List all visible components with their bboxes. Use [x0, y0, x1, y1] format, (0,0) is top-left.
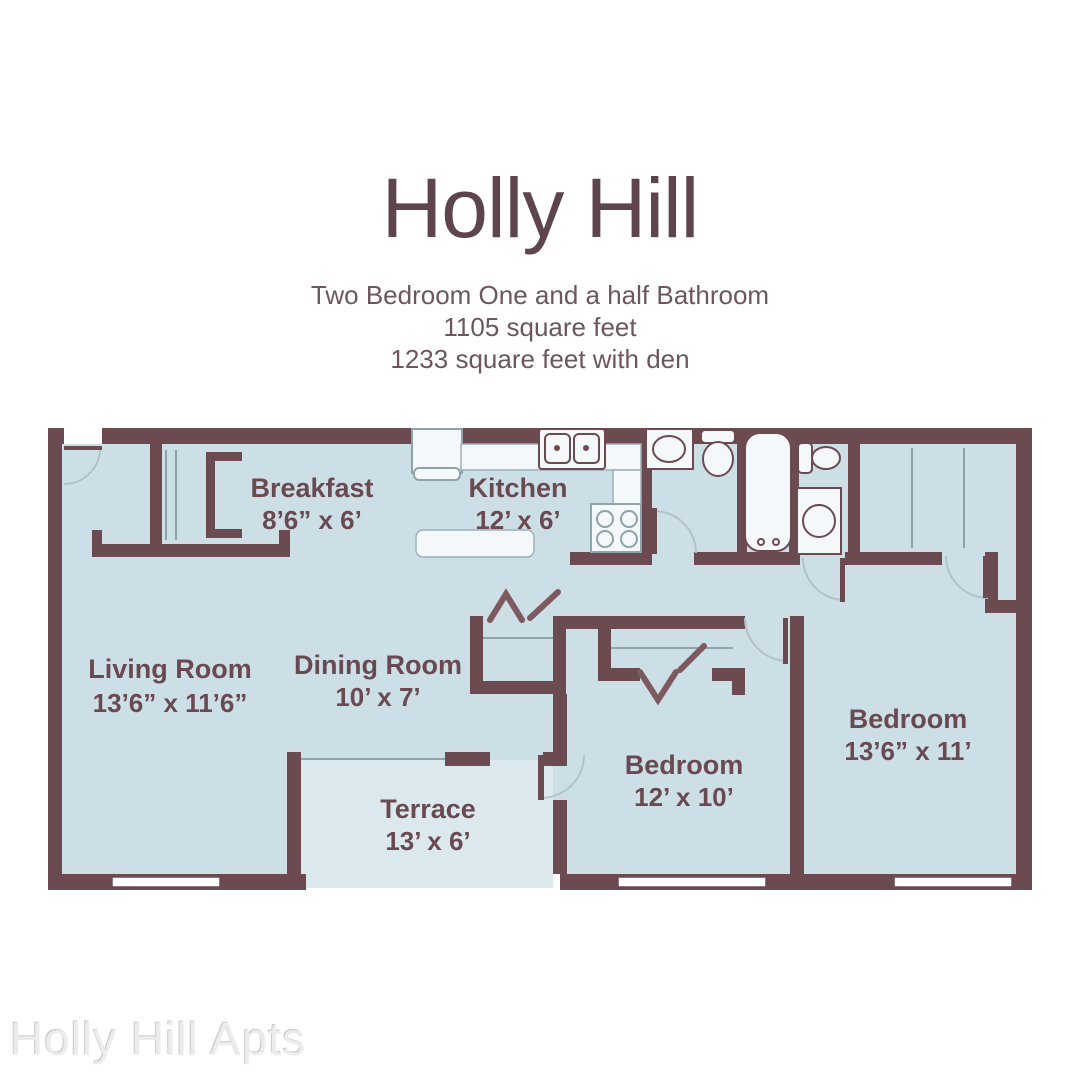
floorplan-page: Holly Hill Two Bedroom One and a half Ba… [0, 0, 1080, 1080]
washer-icon [797, 488, 841, 554]
living-room-dims: 13’6” x 11’6” [93, 688, 248, 718]
bathtub-icon [745, 433, 791, 551]
dining-room-label: Dining Room [294, 650, 462, 680]
stove-icon [591, 504, 641, 552]
terrace-door-leaf [538, 755, 544, 800]
breakfast-dims: 8’6” x 6’ [262, 505, 362, 535]
kitchen-dims: 12’ x 6’ [475, 505, 560, 535]
toilet-icon [701, 430, 735, 476]
watermark: Holly Hill Apts [10, 1012, 306, 1066]
page-title: Holly Hill [0, 160, 1080, 257]
header: Holly Hill Two Bedroom One and a half Ba… [0, 0, 1080, 375]
bedroom2-label: Bedroom [849, 704, 968, 734]
bedroom1-dims: 12’ x 10’ [634, 782, 734, 812]
bedroom2-window [894, 877, 1012, 887]
subtitle-line-2: 1105 square feet [0, 311, 1080, 343]
terrace-label: Terrace [380, 794, 476, 824]
terrace-dims: 13’ x 6’ [385, 826, 470, 856]
dining-room-dims: 10’ x 7’ [335, 682, 420, 712]
living-room-window [112, 877, 220, 887]
kitchen-label: Kitchen [468, 473, 567, 503]
bedroom2-dims: 13’6” x 11’ [844, 736, 971, 766]
subtitle-line-1: Two Bedroom One and a half Bathroom [0, 279, 1080, 311]
fullbath-door-leaf [840, 558, 845, 602]
entry-door-leaf [64, 446, 102, 450]
living-room-label: Living Room [88, 654, 252, 684]
bedroom1-door-leaf [783, 618, 788, 664]
entry-opening [64, 428, 102, 444]
breakfast-label: Breakfast [250, 473, 373, 503]
refrigerator-icon [412, 429, 462, 480]
subtitle: Two Bedroom One and a half Bathroom 1105… [0, 279, 1080, 375]
terrace-floor [301, 760, 553, 888]
bathroom-sink-icon [646, 429, 693, 469]
bedroom1-label: Bedroom [625, 750, 744, 780]
halfbath-door-leaf [652, 508, 657, 554]
subtitle-line-3: 1233 square feet with den [0, 343, 1080, 375]
hall-closet-door-leaf [983, 556, 988, 598]
kitchen-sink-icon [539, 429, 605, 469]
bedroom1-window [618, 877, 766, 887]
